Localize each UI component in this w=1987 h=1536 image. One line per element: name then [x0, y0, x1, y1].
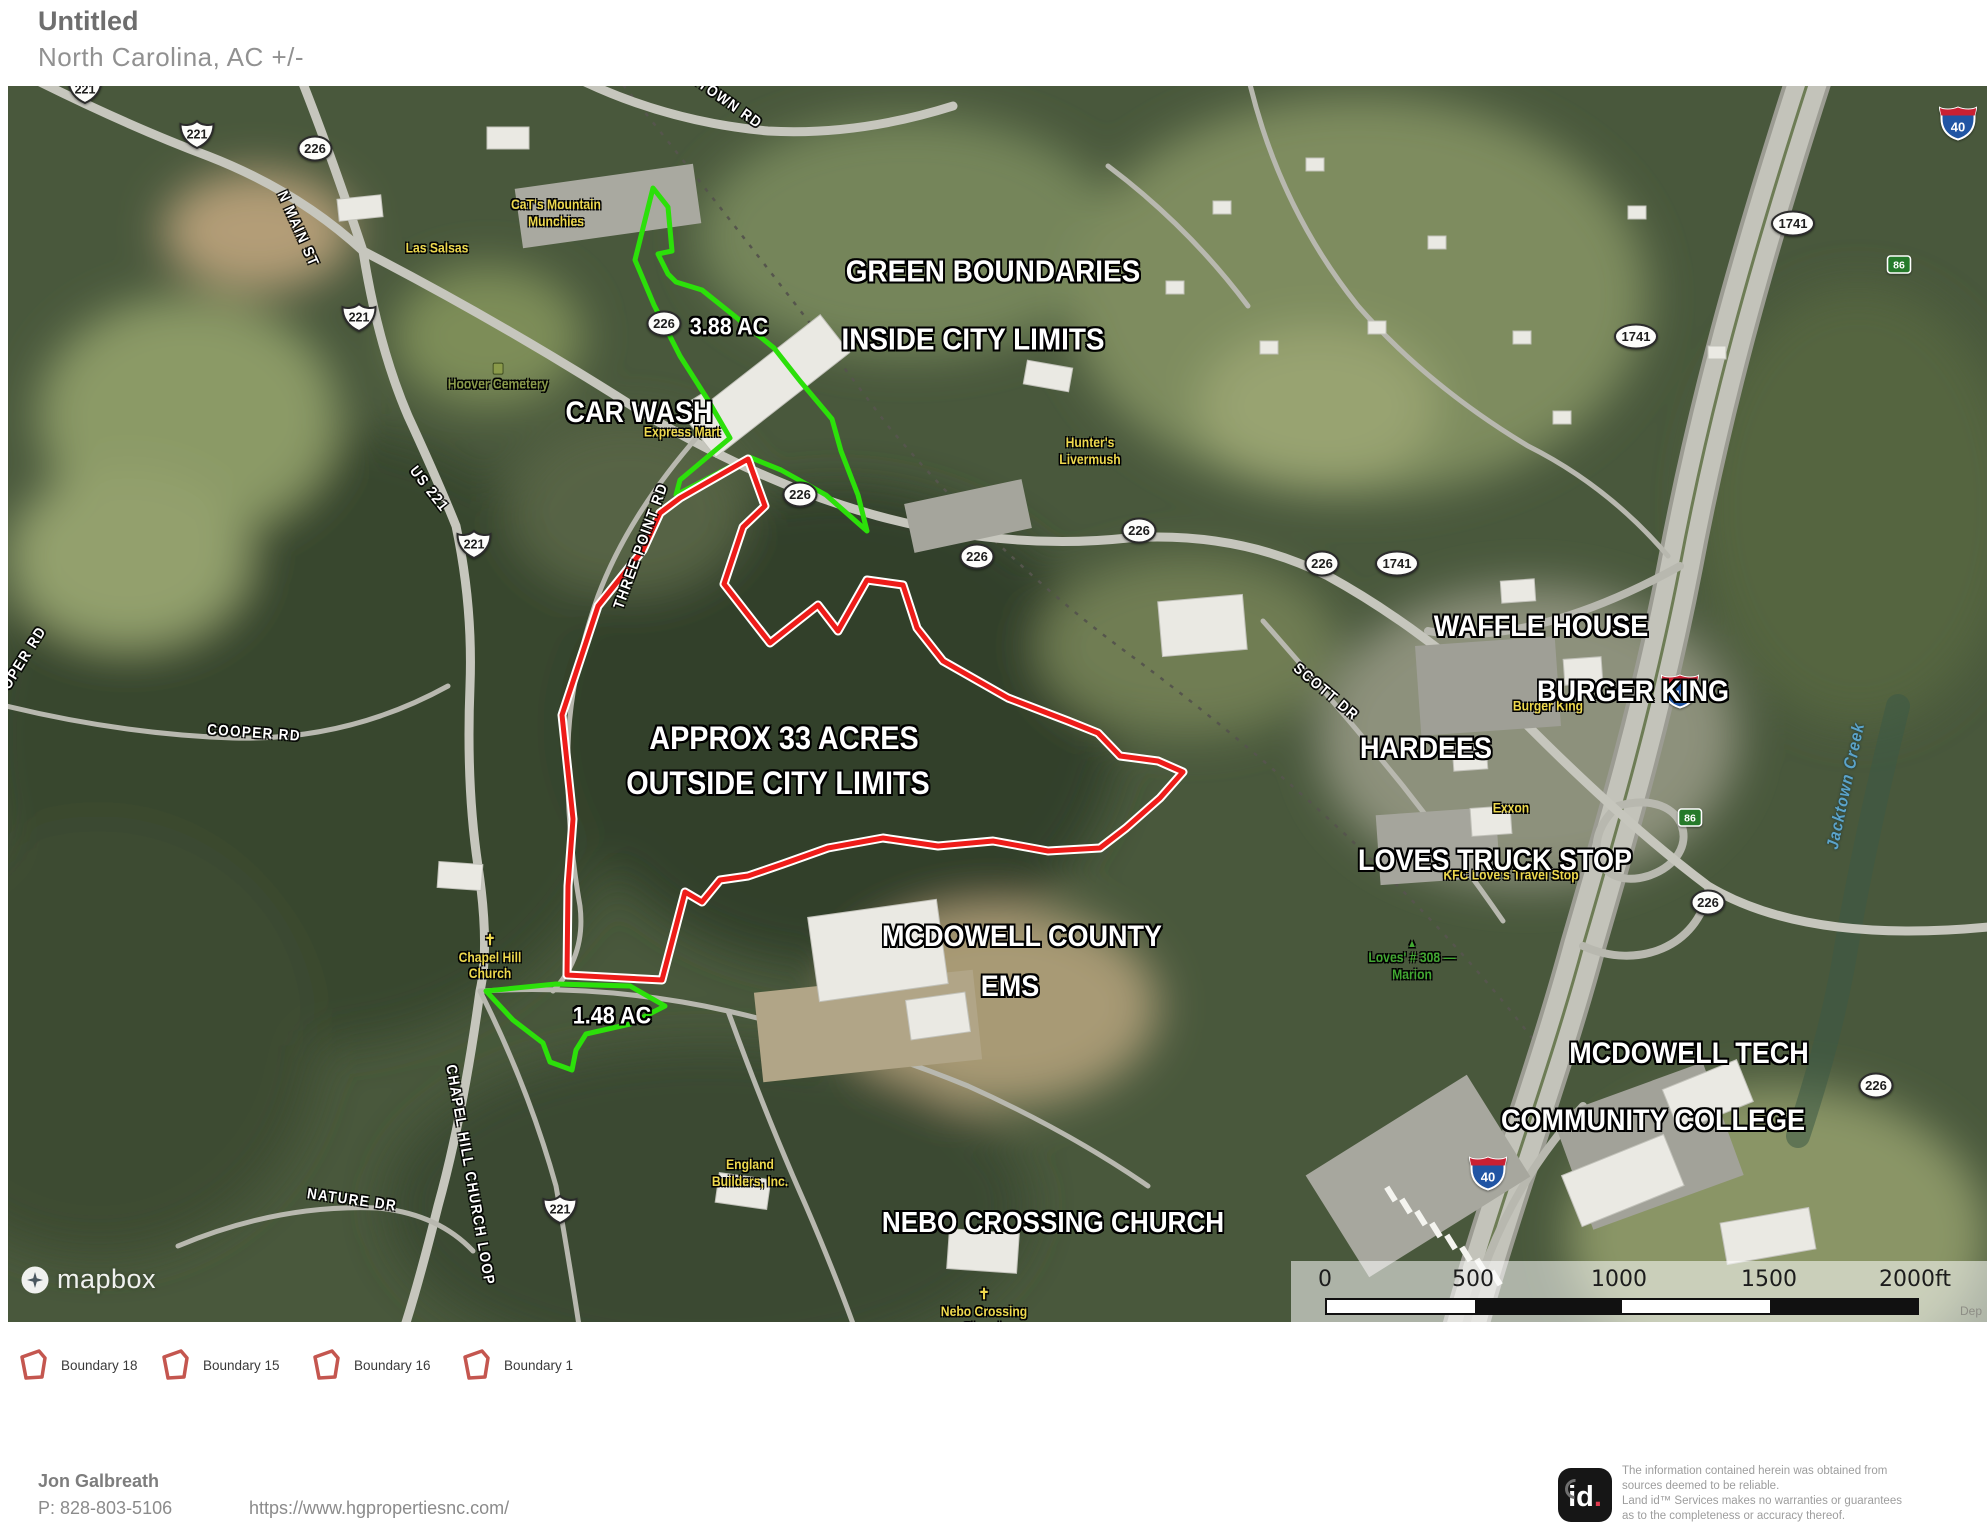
mapbox-logo[interactable]: mapbox	[20, 1264, 156, 1295]
poi-label-hoover-cemetery: Hoover Cemetery	[448, 363, 549, 394]
interstate-40-icon: 40	[1938, 106, 1978, 147]
svg-text:221: 221	[349, 311, 370, 325]
boundary-legend: Boundary 18 Boundary 15 Boundary 16 Boun…	[0, 1342, 1987, 1394]
svg-text:1741: 1741	[1779, 216, 1808, 231]
boundary-shape-icon	[311, 1349, 341, 1381]
scale-tick-2000: 2000ft	[1879, 1267, 1951, 1292]
poi-label-cat-s-mountain-munchies: CaT's MountainMunchies	[511, 197, 601, 231]
route-shield-226-icon: 226	[782, 481, 819, 514]
scale-tick-0: 0	[1318, 1267, 1332, 1292]
svg-text:1741: 1741	[1383, 556, 1412, 571]
church-cross-icon: ✝	[941, 1287, 1027, 1304]
route-shield-226-icon: 226	[297, 135, 334, 168]
poi-label-loves-308-marion: ▲Loves' # 308 —Marion	[1368, 938, 1455, 984]
legend-label: Boundary 16	[354, 1358, 431, 1373]
mapbox-wordmark: mapbox	[57, 1264, 156, 1295]
satellite-map[interactable]: mapbox 0 500 1000 1500 2000ft Dep 221221…	[8, 86, 1987, 1322]
svg-text:226: 226	[1128, 523, 1150, 538]
svg-text:226: 226	[966, 549, 988, 564]
route-shield-226-icon: 226	[1858, 1072, 1895, 1105]
map-annotation-green-boundaries: GREEN BOUNDARIES	[846, 255, 1141, 290]
svg-text:226: 226	[1865, 1078, 1887, 1093]
map-annotation-mcdowell-county: MCDOWELL COUNTY	[882, 920, 1162, 954]
agent-name: Jon Galbreath	[38, 1471, 159, 1492]
route-shield-1741-icon: 1741	[1613, 323, 1659, 356]
poi-label-nebo-crossing-church: ✝Nebo CrossingChurch	[941, 1287, 1027, 1322]
land-id-logo: id.	[1558, 1468, 1612, 1522]
map-annotation-burger-king: BURGER KING	[1537, 675, 1729, 709]
poi-label-chapel-hill-church: ✝Chapel HillChurch	[459, 933, 522, 983]
map-annotation-outside-city-limits: OUTSIDE CITY LIMITS	[626, 766, 929, 802]
svg-text:86: 86	[1684, 813, 1696, 825]
poi-label-exxon: Exxon	[1493, 801, 1529, 818]
disclaimer-text: The information contained herein was obt…	[1622, 1464, 1984, 1524]
poi-label-england-builders-inc: EnglandBuilders, Inc.	[712, 1157, 788, 1191]
svg-text:226: 226	[653, 316, 675, 331]
poi-label-hunter-s-livermush: Hunter'sLivermush	[1059, 435, 1120, 469]
exit-86-icon: 86	[1886, 255, 1912, 280]
svg-text:226: 226	[304, 141, 326, 156]
legend-item-boundary-18[interactable]: Boundary 18	[18, 1342, 138, 1388]
svg-text:226: 226	[789, 487, 811, 502]
svg-text:226: 226	[1311, 556, 1333, 571]
map-scale-bar: 0 500 1000 1500 2000ft	[1291, 1261, 1987, 1322]
agent-website[interactable]: https://www.hgpropertiesnc.com/	[249, 1498, 509, 1519]
route-shield-221-icon: 221	[542, 1195, 578, 1230]
map-annotation-mcdowell-tech: MCDOWELL TECH	[1569, 1037, 1808, 1071]
exit-86-icon: 86	[1677, 808, 1703, 833]
boundary-shape-icon	[461, 1349, 491, 1381]
poi-label-las-salsas: Las Salsas	[406, 241, 469, 258]
route-shield-221-icon: 221	[67, 86, 103, 110]
underlay-map-label: Dep	[1960, 1304, 1982, 1318]
route-shield-226-icon: 226	[646, 310, 683, 343]
scale-tick-1000: 1000	[1591, 1267, 1647, 1292]
svg-text:221: 221	[550, 1203, 571, 1217]
legend-item-boundary-16[interactable]: Boundary 16	[311, 1342, 431, 1388]
legend-label: Boundary 15	[203, 1358, 280, 1373]
svg-text:1741: 1741	[1622, 329, 1651, 344]
route-shield-221-icon: 221	[456, 530, 492, 565]
route-shield-1741-icon: 1741	[1374, 550, 1420, 583]
map-annotation-loves-truck-stop: LOVES TRUCK STOP	[1358, 844, 1632, 878]
map-annotation-waffle-house: WAFFLE HOUSE	[1434, 610, 1649, 644]
page-title: Untitled	[38, 6, 139, 37]
map-annotation-1-48-ac: 1.48 AC	[573, 1004, 651, 1031]
route-shield-226-icon: 226	[1690, 889, 1727, 922]
cemetery-icon	[493, 363, 504, 375]
route-shield-1741-icon: 1741	[1770, 210, 1816, 243]
route-shield-226-icon: 226	[1304, 550, 1341, 583]
scale-tick-500: 500	[1452, 1267, 1494, 1292]
svg-text:221: 221	[187, 128, 208, 142]
legend-label: Boundary 18	[61, 1358, 138, 1373]
poi-triangle-icon: ▲	[1368, 938, 1455, 950]
interstate-40-icon: 40	[1468, 1156, 1508, 1197]
route-shield-226-icon: 226	[1121, 517, 1158, 550]
legend-label: Boundary 1	[504, 1358, 573, 1373]
boundary-shape-icon	[160, 1349, 190, 1381]
route-shield-221-icon: 221	[341, 303, 377, 338]
map-annotation-nebo-crossing-church: NEBO CROSSING CHURCH	[882, 1207, 1224, 1239]
svg-text:40: 40	[1481, 1170, 1495, 1185]
map-annotation-ems: EMS	[981, 970, 1040, 1004]
svg-text:86: 86	[1893, 260, 1905, 272]
land-id-map-export: Untitled North Carolina, AC +/-	[0, 0, 1987, 1536]
scale-bar-segments	[1325, 1298, 1919, 1315]
svg-text:221: 221	[75, 86, 96, 97]
church-cross-icon: ✝	[459, 933, 522, 950]
legend-item-boundary-15[interactable]: Boundary 15	[160, 1342, 280, 1388]
map-annotation-community-college: COMMUNITY COLLEGE	[1501, 1104, 1805, 1138]
svg-text:221: 221	[464, 538, 485, 552]
map-annotation-inside-city-limits: INSIDE CITY LIMITS	[841, 323, 1104, 358]
svg-text:226: 226	[1697, 895, 1719, 910]
route-shield-226-icon: 226	[959, 543, 996, 576]
map-annotation-hardees: HARDEES	[1360, 732, 1492, 766]
map-annotation-car-wash: CAR WASH	[565, 396, 712, 430]
route-shield-221-icon: 221	[179, 120, 215, 155]
agent-phone: P: 828-803-5106	[38, 1498, 172, 1519]
map-annotation-approx-33-acres: APPROX 33 ACRES	[649, 721, 918, 757]
svg-text:40: 40	[1951, 120, 1965, 135]
boundary-shape-icon	[18, 1349, 48, 1381]
scale-tick-1500: 1500	[1741, 1267, 1797, 1292]
legend-item-boundary-1[interactable]: Boundary 1	[461, 1342, 573, 1388]
page-subtitle: North Carolina, AC +/-	[38, 42, 304, 73]
map-annotation-3-88-ac: 3.88 AC	[690, 315, 768, 342]
mapbox-icon	[20, 1265, 50, 1295]
